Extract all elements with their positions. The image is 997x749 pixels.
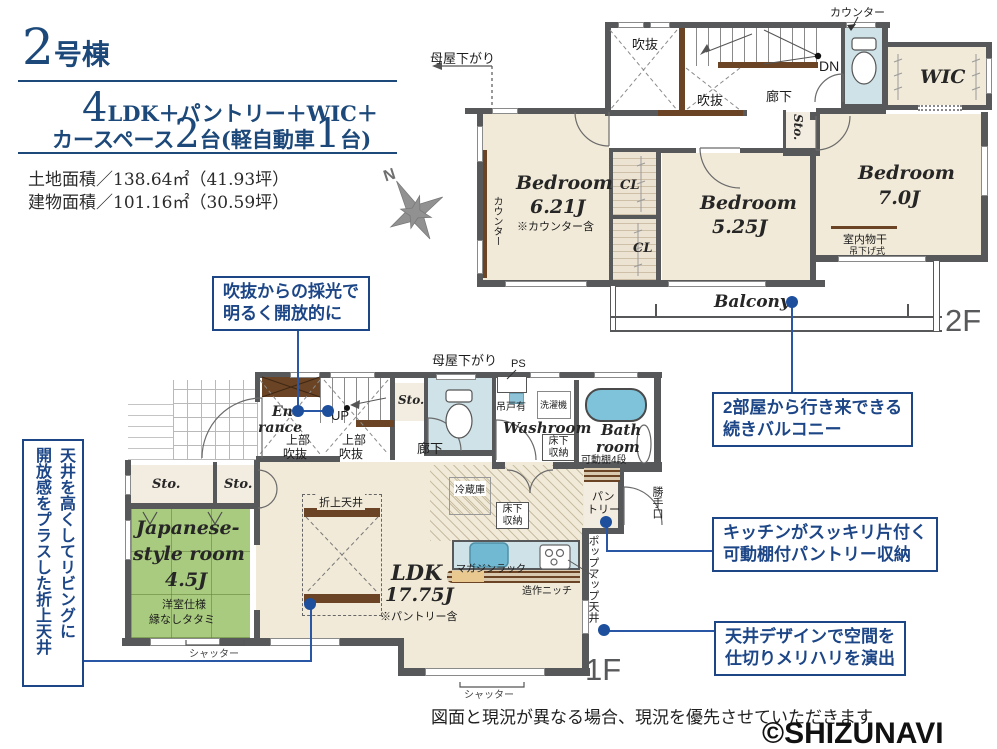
hanging-cabinet-label: 吊戸有 xyxy=(496,398,526,413)
wall xyxy=(465,108,610,114)
hallway-label-1f: 廊下 xyxy=(417,438,443,457)
underfloor-line2: 収納 xyxy=(499,516,526,528)
wall xyxy=(356,420,394,427)
bathroom-label1: Bath xyxy=(601,421,641,439)
callout-line: 開放感をプラスした折上天井 xyxy=(29,447,53,679)
bedroom1-note: ※カウンター含 xyxy=(517,218,594,234)
wic-label: WIC xyxy=(920,66,965,88)
underfloor-line1: 床下 xyxy=(545,436,572,448)
void2-label: 吹抜 xyxy=(697,90,723,109)
wall xyxy=(679,28,685,116)
closet1-label: CL xyxy=(620,178,640,193)
window xyxy=(618,22,644,28)
unit-number: 2 xyxy=(22,22,54,72)
callout-line: 続きバルコニー xyxy=(723,419,902,441)
upper-void1b: 吹抜 xyxy=(283,445,307,462)
connector-line xyxy=(310,604,312,662)
connector-dot xyxy=(598,624,610,636)
window xyxy=(986,58,992,94)
bedroom2-name: Bedroom xyxy=(700,192,797,214)
connector-line xyxy=(606,550,714,552)
wall xyxy=(390,374,395,460)
ldk-note: ※パントリー含 xyxy=(380,608,458,624)
counter-wall xyxy=(483,150,487,278)
building-area: 建物面積／101.16㎡（30.59坪） xyxy=(28,188,289,213)
popup-ceiling-label: ポップアップ天井 xyxy=(585,535,601,623)
window xyxy=(425,668,545,676)
japanese-note1: 洋室仕様 xyxy=(162,596,206,612)
backdoor-label: 勝手口 xyxy=(649,486,665,519)
ldk-size: 17.75J xyxy=(385,584,454,606)
wall xyxy=(618,465,662,472)
hallway-label-2f: 廊下 xyxy=(766,86,792,105)
bedroom1-size: 6.21J xyxy=(530,196,585,218)
wall xyxy=(816,108,886,114)
connector-dot xyxy=(292,405,304,417)
underfloor-line2: 収納 xyxy=(545,448,572,460)
ps-shaft xyxy=(497,376,527,393)
wall xyxy=(810,150,816,282)
compass-north-label: N xyxy=(382,166,399,187)
land-area: 土地面積／138.64㎡（41.93坪） xyxy=(28,165,289,190)
fridge-label: 冷蔵庫 xyxy=(454,481,486,496)
car-mid: 台(軽自動車 xyxy=(200,124,315,154)
window xyxy=(650,22,670,28)
plan-spec-line2: カースペース2台(軽自動車1台) xyxy=(52,114,371,154)
japanese-room-label1: Japanese- xyxy=(136,517,239,539)
storage2-label: Sto. xyxy=(224,477,252,492)
callout-line: 明るく開放的に xyxy=(223,303,359,325)
wall xyxy=(656,148,696,153)
balcony-label: Balcony xyxy=(714,292,790,312)
callout-line: 天井を高くしてリビングに xyxy=(53,447,77,679)
closet2-label: CL xyxy=(633,241,653,256)
void1-label: 吹抜 xyxy=(632,34,658,53)
car-count: 2 xyxy=(174,114,199,154)
drying-sub-label: 吊下げ式 xyxy=(849,244,885,257)
window xyxy=(436,374,476,380)
window xyxy=(505,281,587,287)
pantry-label2: トリー xyxy=(587,501,620,517)
window xyxy=(330,372,375,378)
balcony-rail xyxy=(610,316,942,332)
callout-line: 2部屋から行き来できる xyxy=(723,397,902,419)
storage-2f-label: Sto. xyxy=(791,114,805,140)
toilet-2f xyxy=(845,28,882,104)
bedroom2-size: 5.25J xyxy=(712,216,767,238)
shoe-cabinet xyxy=(262,377,320,397)
underfloor-storage-wash: 床下 収納 xyxy=(542,434,575,461)
moyasagari-label-1f: 母屋下がり xyxy=(432,350,497,369)
wall xyxy=(609,215,660,219)
floor1-label: 1F xyxy=(585,652,621,688)
underfloor-line1: 床下 xyxy=(499,504,526,516)
ps-label: PS xyxy=(511,358,526,370)
connector-dot xyxy=(786,296,798,308)
shutter2-label: シャッター xyxy=(464,686,514,701)
wall xyxy=(254,460,260,545)
pantry-shelves xyxy=(584,468,620,482)
storage1-label: Sto. xyxy=(152,477,180,492)
unit-title: 2号棟 xyxy=(22,22,110,73)
window xyxy=(530,372,560,378)
connector-dot xyxy=(322,405,334,417)
bedroom3-size: 7.0J xyxy=(878,187,920,209)
japanese-room-size: 4.5J xyxy=(165,569,207,591)
divider xyxy=(18,80,397,82)
window xyxy=(125,520,131,560)
connector-line xyxy=(297,324,299,414)
callout-line: 天井デザインで空間を xyxy=(725,626,895,648)
callout-line: キッチンがスッキリ片付く xyxy=(723,522,927,544)
wall xyxy=(492,374,496,466)
drying-rod xyxy=(831,226,897,229)
watermark: ©SHIZUNAVI xyxy=(762,717,944,749)
wall xyxy=(658,110,743,116)
wic-entry xyxy=(918,105,962,111)
wall xyxy=(213,462,217,506)
wall xyxy=(882,42,992,47)
connector-dot xyxy=(600,516,612,528)
wall xyxy=(605,22,611,116)
balcony-wall xyxy=(933,260,940,332)
window xyxy=(477,126,483,162)
window xyxy=(477,240,483,274)
washer-label: 洗濯機 xyxy=(540,398,567,411)
callout-ceiling-design: 天井デザインで空間を 仕切りメリハリを演出 xyxy=(714,621,906,676)
callout-void-light: 吹抜からの採光で 明るく開放的に xyxy=(212,276,370,331)
underfloor-storage-kitchen: 床下 収納 xyxy=(496,502,529,529)
niche-label: 造作ニッチ xyxy=(522,582,572,597)
wall xyxy=(882,22,888,110)
bedroom3 xyxy=(816,114,981,255)
wall xyxy=(718,62,818,68)
wall xyxy=(654,372,661,471)
connector-line xyxy=(791,302,793,394)
connector-line xyxy=(604,630,716,632)
window xyxy=(981,146,988,196)
japanese-room-label2: style room xyxy=(133,543,245,565)
approach-tiles xyxy=(173,380,258,460)
window xyxy=(290,372,320,378)
window xyxy=(270,638,340,646)
window xyxy=(846,22,876,28)
callout-coffered: 天井を高くしてリビングに 開放感をプラスした折上天井 xyxy=(22,439,84,687)
counter-side-label: カウンター xyxy=(489,196,504,246)
callout-line: 吹抜からの採光で xyxy=(223,281,359,303)
wall xyxy=(492,462,505,469)
window xyxy=(668,281,766,287)
wall xyxy=(740,148,816,153)
dn-label: DN xyxy=(819,58,839,74)
kei-count: 1 xyxy=(315,114,340,154)
ldk-label: LDK xyxy=(391,560,442,585)
wall xyxy=(841,28,845,110)
callout-line: 仕切りメリハリを演出 xyxy=(725,648,895,670)
callout-line: 可動棚付パントリー収納 xyxy=(723,544,927,566)
moyasagari-label-2f: 母屋下がり xyxy=(430,48,495,67)
connector-dot xyxy=(304,598,316,610)
window xyxy=(594,372,638,378)
bedroom1-name: Bedroom xyxy=(516,172,613,194)
stairs-2f xyxy=(684,28,818,66)
coffered-label: 折上天井 xyxy=(317,494,365,510)
shelf-note-label: 可動棚4段 xyxy=(581,451,627,466)
japanese-note2: 縁なしタタミ xyxy=(149,611,215,627)
shutter1-label: シャッター xyxy=(189,645,239,660)
floorplan-page: 2号棟 4LDK＋パントリー＋WIC＋ カースペース2台(軽自動車1台) 土地面… xyxy=(0,0,997,749)
bedroom3-name: Bedroom xyxy=(858,162,955,184)
wall xyxy=(609,148,660,152)
window xyxy=(492,108,518,114)
counter-label-2f: カウンター xyxy=(830,4,885,20)
callout-pantry: キッチンがスッキリ片付く 可動棚付パントリー収納 xyxy=(712,517,938,572)
wall xyxy=(816,110,820,156)
connector-line xyxy=(74,660,312,662)
unit-suffix: 号棟 xyxy=(54,33,110,73)
floor2-label: 2F xyxy=(945,303,981,339)
storage-hall-label: Sto. xyxy=(398,393,424,407)
magazine-rack-label: マガジンラック xyxy=(456,560,526,575)
carspace-label: カースペース xyxy=(52,124,174,154)
wall xyxy=(125,503,258,509)
wall xyxy=(255,372,260,402)
upper-void2b: 吹抜 xyxy=(339,445,363,462)
car-end: 台) xyxy=(340,124,371,154)
entry-steps xyxy=(128,398,173,460)
window xyxy=(125,475,131,495)
callout-balcony: 2部屋から行き来できる 続きバルコニー xyxy=(712,392,913,447)
